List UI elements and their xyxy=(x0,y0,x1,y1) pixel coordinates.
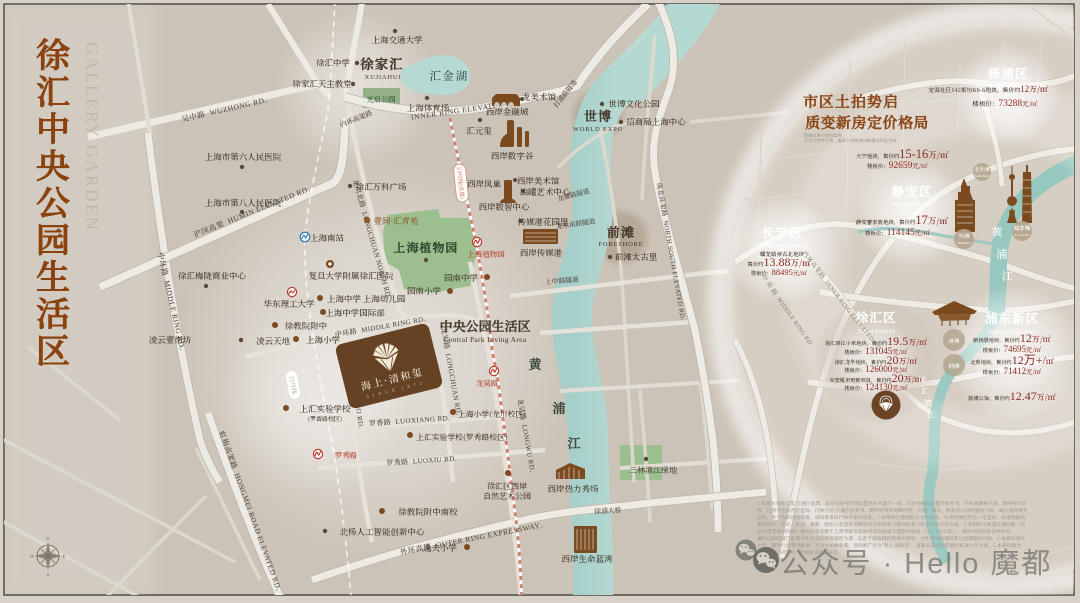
svg-text:楼板价：73288元/㎡: 楼板价：73288元/㎡ xyxy=(972,99,1038,109)
svg-text:信息，并不构成规划承诺，请购房者自行核实相关信息。2.本图所: 信息，并不构成规划承诺，请购房者自行核实相关信息。2.本图所示建筑群仅为示意图，… xyxy=(756,514,1025,521)
svg-text:汇元玺: 汇元玺 xyxy=(466,125,492,137)
svg-text:江: 江 xyxy=(1002,268,1013,284)
svg-text:园南小学: 园南小学 xyxy=(407,285,442,297)
svg-text:徐汇梅陇商业中心: 徐汇梅陇商业中心 xyxy=(178,270,247,282)
svg-text:上海交通大学: 上海交通大学 xyxy=(371,34,423,46)
svg-text:上海植物园: 上海植物园 xyxy=(392,239,458,256)
svg-text:(罗香路校区): (罗香路校区) xyxy=(308,414,343,423)
svg-text:GALLERY GARDEN: GALLERY GARDEN xyxy=(82,42,102,232)
svg-text:徐家汇天主教堂: 徐家汇天主教堂 xyxy=(292,78,352,90)
svg-text:世博: 世博 xyxy=(948,337,960,345)
svg-text:楼板价：114145元/㎡: 楼板价：114145元/㎡ xyxy=(865,228,931,238)
svg-text:油罐艺术中心: 油罐艺术中心 xyxy=(519,186,571,198)
svg-text:上海体育场: 上海体育场 xyxy=(407,102,450,114)
svg-text:徐汇中学: 徐汇中学 xyxy=(316,57,351,69)
svg-text:上海中学: 上海中学 xyxy=(327,293,362,305)
svg-text:西岸凤巢: 西岸凤巢 xyxy=(467,178,502,190)
svg-text:The Bund: The Bund xyxy=(957,241,971,245)
svg-text:静安区: 静安区 xyxy=(891,182,933,200)
svg-text:上海中学国际部: 上海中学国际部 xyxy=(325,307,385,319)
svg-text:黄: 黄 xyxy=(528,354,542,373)
svg-text:西岸数字谷: 西岸数字谷 xyxy=(491,150,534,162)
svg-text:逸夫小学: 逸夫小学 xyxy=(423,542,458,554)
svg-text:定海社区142街坊K8-6地块，售价约12万/㎡: 定海社区142街坊K8-6地块，售价约12万/㎡ xyxy=(928,84,1049,95)
svg-text:括在建及规划线路）相关信息来源于上海市城市总体规划及轨道交通: 括在建及规划线路）相关信息来源于上海市城市总体规划及轨道交通建设规划（2017-… xyxy=(757,528,1015,535)
svg-text:壹间·汇青苑: 壹间·汇青苑 xyxy=(373,215,418,227)
svg-text:North Bund: North Bund xyxy=(974,174,990,178)
svg-text:上汇实验学校(罗秀路校区): 上汇实验学校(罗秀路校区) xyxy=(416,432,508,443)
svg-text:建筑设计、形式、外观、高度、颜色以及建设进度等均以政府部门最: 建筑设计、形式、外观、高度、颜色以及建设进度等均以政府部门最终批准文件及实际交付… xyxy=(756,521,1025,528)
svg-text:FORESHORE: FORESHORE xyxy=(598,241,643,248)
svg-text:WORLD EXPO: WORLD EXPO xyxy=(573,126,623,133)
svg-text:长宁区: 长宁区 xyxy=(762,223,803,241)
svg-text:罗秀路: 罗秀路 xyxy=(335,450,358,461)
svg-text:园南中学: 园南中学 xyxy=(444,272,479,284)
svg-text:上海小学(龙川校区): 上海小学(龙川校区) xyxy=(458,409,526,420)
svg-text:滨: 滨 xyxy=(924,398,932,409)
svg-text:市区土拍势启: 市区土拍势启 xyxy=(803,91,899,112)
svg-text:浦: 浦 xyxy=(997,246,1008,262)
svg-text:光启公园: 光启公园 xyxy=(367,95,397,105)
svg-text:龙吴路: 龙吴路 xyxy=(476,378,499,389)
svg-text:杨浦区: 杨浦区 xyxy=(987,64,1029,82)
svg-text:汇: 汇 xyxy=(921,386,929,397)
svg-text:北杨人工智能创新中心: 北杨人工智能创新中心 xyxy=(339,526,425,538)
svg-text:黄: 黄 xyxy=(992,224,1003,240)
svg-text:前滩太古里: 前滩太古里 xyxy=(615,251,658,263)
svg-text:西岸生命蓝湾: 西岸生命蓝湾 xyxy=(561,553,613,565)
svg-text:世博: 世博 xyxy=(584,106,612,125)
svg-text:自然艺术公园: 自然艺术公园 xyxy=(483,491,531,502)
svg-text:凌云壹街坊: 凌云壹街坊 xyxy=(149,334,192,346)
svg-text:Jing'an District: Jing'an District xyxy=(892,201,931,208)
svg-text:汇金湖: 汇金湖 xyxy=(430,68,469,84)
svg-text:上海植物园: 上海植物园 xyxy=(467,249,505,260)
svg-text:西岸热力秀场: 西岸热力秀场 xyxy=(547,483,599,495)
svg-text:江: 江 xyxy=(926,410,935,421)
svg-text:华东理工大学: 华东理工大学 xyxy=(263,298,315,310)
svg-text:浦东新区: 浦东新区 xyxy=(985,309,1039,327)
svg-text:复旦大学附属徐汇医院: 复旦大学附属徐汇医院 xyxy=(308,270,394,282)
svg-text:上海南站: 上海南站 xyxy=(310,232,345,244)
svg-text:前滩: 前滩 xyxy=(948,362,959,370)
svg-text:公众号 · Hello 魔都: 公众号 · Hello 魔都 xyxy=(780,540,1053,582)
svg-text:楼板价：92659元/㎡: 楼板价：92659元/㎡ xyxy=(867,161,928,171)
svg-text:传媒港花园里: 传媒港花园里 xyxy=(517,216,569,228)
svg-text:XUJIAHUI: XUJIAHUI xyxy=(365,74,402,81)
svg-text:龙美术馆: 龙美术馆 xyxy=(522,91,557,103)
svg-text:三林滨江绿地: 三林滨江绿地 xyxy=(629,465,677,476)
svg-text:世博文化公园: 世博文化公园 xyxy=(607,98,660,110)
svg-text:质变新房定价格局: 质变新房定价格局 xyxy=(805,112,929,133)
svg-text:中央公园生活区: 中央公园生活区 xyxy=(439,316,531,335)
svg-text:Central Park Living Area: Central Park Living Area xyxy=(444,335,527,344)
svg-text:凌云天地: 凌云天地 xyxy=(256,335,291,347)
svg-text:上海市第六人民医院: 上海市第六人民医院 xyxy=(205,151,282,163)
svg-text:1.本图为项目位置/交通示意图，部分内容与区域位置关系可能不: 1.本图为项目位置/交通示意图，部分内容与区域位置关系可能不一致，仅作为相对位置… xyxy=(757,500,1027,507)
svg-text:仅作为参考示意，据此入市敬请知悉相关风险为准: 仅作为参考示意，据此入市敬请知悉相关风险为准 xyxy=(803,138,897,144)
svg-text:招商局上海中心: 招商局上海中心 xyxy=(625,116,686,128)
svg-text:江: 江 xyxy=(566,433,580,452)
svg-text:西岸数智中心: 西岸数智中心 xyxy=(478,201,530,213)
svg-text:北外滩: 北外滩 xyxy=(973,166,989,173)
svg-text:徐汇万科广场: 徐汇万科广场 xyxy=(355,181,407,193)
svg-text:区: 区 xyxy=(36,324,70,373)
svg-text:上海市第八人民医院: 上海市第八人民医院 xyxy=(205,197,282,209)
svg-text:西岸金融城: 西岸金融城 xyxy=(486,106,529,118)
svg-text:徐浦大桥: 徐浦大桥 xyxy=(594,504,622,515)
svg-text:外滩: 外滩 xyxy=(958,232,969,240)
svg-text:徐家汇: 徐家汇 xyxy=(359,53,404,73)
svg-text:E: E xyxy=(63,554,66,560)
svg-text:Lu Jia Zui: Lu Jia Zui xyxy=(1015,233,1029,237)
svg-text:上海幼儿园: 上海幼儿园 xyxy=(363,293,406,305)
svg-text:前滩: 前滩 xyxy=(607,222,635,241)
svg-text:西岸传媒港: 西岸传媒港 xyxy=(520,247,563,259)
svg-text:徐教院附中: 徐教院附中 xyxy=(285,320,328,332)
svg-text:浦: 浦 xyxy=(551,398,565,417)
svg-text:徐教院附中南校: 徐教院附中南校 xyxy=(398,506,458,518)
svg-text:徐: 徐 xyxy=(918,374,927,385)
svg-text:域、比例与实际存在差异，仅供方位/交通示意参考，图中对项目周: 域、比例与实际存在差异，仅供方位/交通示意参考，图中对项目周围环境、交通、商业、… xyxy=(756,507,1028,514)
svg-text:Changning District: Changning District xyxy=(757,242,807,249)
svg-text:陆家嘴: 陆家嘴 xyxy=(1014,224,1031,232)
